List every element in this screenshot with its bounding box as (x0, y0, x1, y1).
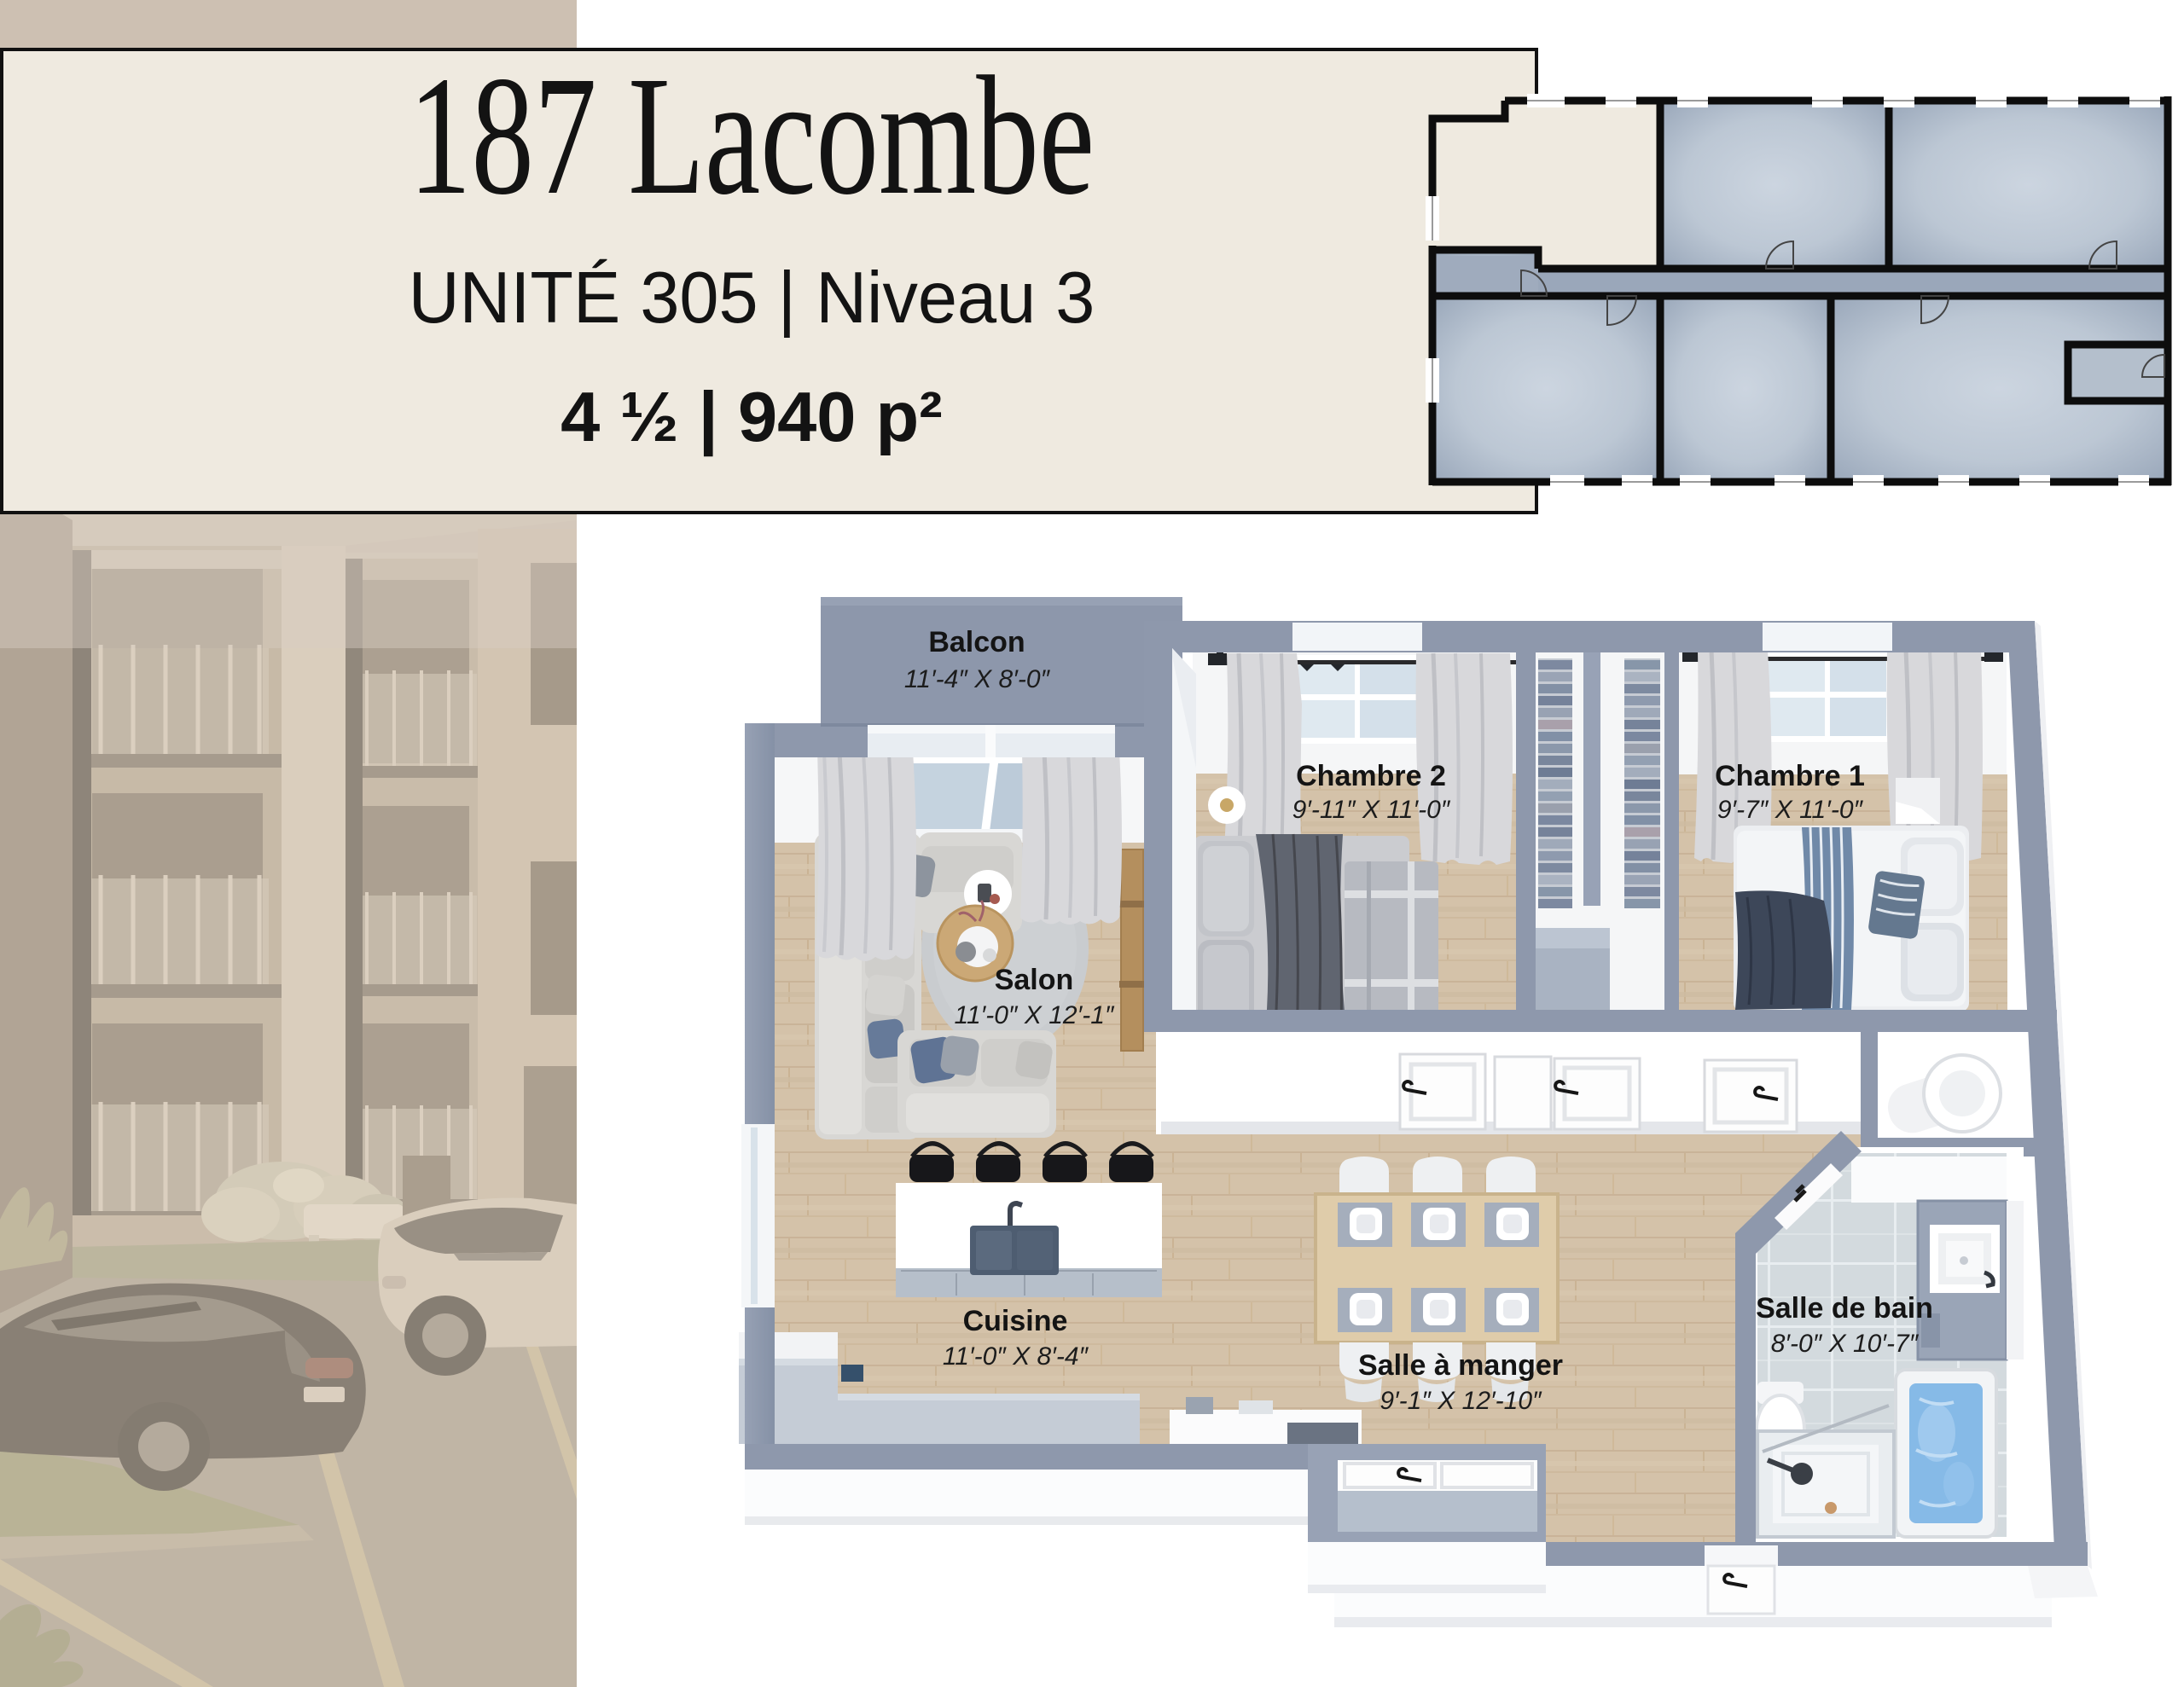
svg-text:Chambre 1: Chambre 1 (1715, 760, 1865, 792)
svg-text:Cuisine: Cuisine (963, 1305, 1068, 1337)
svg-text:8′-0″ X 10′-7″: 8′-0″ X 10′-7″ (1771, 1330, 1920, 1358)
svg-text:Salon: Salon (995, 964, 1074, 996)
svg-text:9′-11″ X 11′-0″: 9′-11″ X 11′-0″ (1292, 796, 1451, 824)
svg-text:Balcon: Balcon (928, 626, 1025, 658)
svg-text:Salle à manger: Salle à manger (1358, 1349, 1563, 1382)
svg-text:11′-0″ X 12′-1″: 11′-0″ X 12′-1″ (954, 1001, 1114, 1029)
svg-text:9′-1″ X 12′-10″: 9′-1″ X 12′-10″ (1380, 1387, 1542, 1415)
svg-text:Salle de bain: Salle de bain (1756, 1292, 1933, 1325)
svg-text:9′-7″ X 11′-0″: 9′-7″ X 11′-0″ (1717, 796, 1864, 824)
svg-text:11′-0″ X 8′-4″: 11′-0″ X 8′-4″ (943, 1342, 1089, 1371)
svg-text:11′-4″ X 8′-0″: 11′-4″ X 8′-0″ (904, 665, 1051, 693)
svg-text:Chambre 2: Chambre 2 (1296, 760, 1446, 792)
